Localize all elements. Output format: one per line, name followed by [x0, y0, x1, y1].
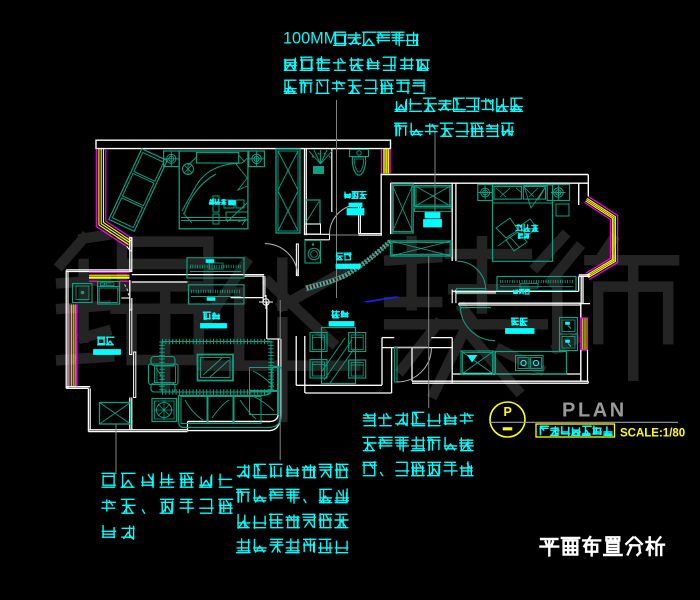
svg-text:PLAN: PLAN — [562, 400, 627, 422]
svg-text:100MM: 100MM — [283, 30, 337, 48]
svg-text:SCALE:1/80: SCALE:1/80 — [620, 428, 685, 440]
svg-text:P: P — [504, 405, 512, 419]
